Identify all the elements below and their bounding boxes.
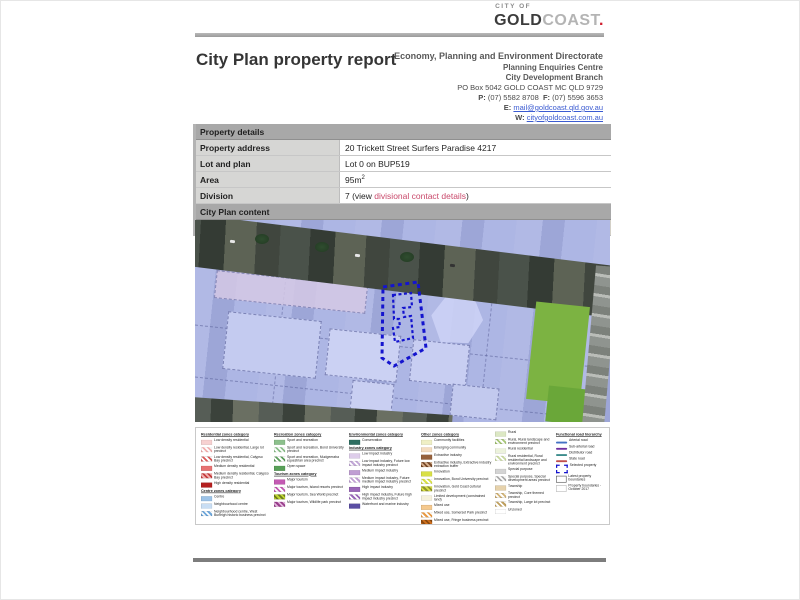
table-row: Division 7 (view divisional contact deta… [196, 188, 611, 204]
header-rule [195, 33, 604, 37]
legend-swatch [421, 440, 432, 445]
legend-swatch [274, 447, 285, 452]
legend-item: Major tourism [274, 479, 346, 485]
map-tree [315, 242, 329, 252]
legend-column: RuralRural, Rural landscape and environm… [495, 431, 553, 525]
row-label: Lot and plan [196, 156, 340, 171]
legend-swatch [274, 440, 285, 445]
legend-swatch [495, 432, 506, 437]
legend-item: Community facilities [421, 439, 493, 445]
legend-item-label: Extractive industry, Extractive industry… [434, 462, 493, 469]
contact-block: Economy, Planning and Environment Direct… [394, 51, 603, 123]
legend-item: Mixed use [421, 504, 493, 510]
page-title: City Plan property report [196, 50, 396, 70]
legend-item: Medium density residential, Calypso Bay … [201, 473, 269, 480]
legend-item: Major tourism, Sea World precinct [274, 494, 346, 500]
legend-swatch [201, 482, 212, 487]
legend-swatch [421, 505, 432, 510]
legend-item: Sub-arterial road [556, 445, 606, 449]
legend-item-label: Innovation [434, 471, 450, 475]
legend-item-label: Sport and recreation [287, 439, 318, 443]
legend-item: Extractive industry [421, 454, 493, 460]
legend-swatch [201, 466, 212, 471]
legend-swatch [556, 442, 567, 444]
legend-swatch [274, 494, 285, 499]
legend-item-label: Low density residential, Calypso Bay pre… [214, 456, 269, 463]
legend-section-header: Tourism zones category [274, 473, 346, 477]
legend-item-label: Rural residential [508, 448, 533, 452]
legend-swatch [495, 485, 506, 490]
legend-item-label: Medium density residential [214, 465, 254, 469]
legend-item: Limited development (constrained land) [421, 495, 493, 502]
legend-item-label: Township, Core themed precinct [508, 492, 553, 499]
enquiries-centre: Planning Enquiries Centre [394, 63, 603, 72]
legend-item-label: Major tourism, Wildlife park precinct [287, 501, 341, 505]
legend-swatch [421, 455, 432, 460]
legend-item-label: Township, Large lot precinct [508, 501, 550, 505]
legend-item-label: Conservation [362, 439, 382, 443]
area-superscript: 2 [362, 175, 365, 181]
legend-item: Township, Large lot precinct [495, 501, 553, 507]
legend-item-label: Low density residential, Large lot preci… [214, 447, 269, 454]
legend-item-label: Property boundaries - October 2017 [568, 484, 606, 491]
row-label: Division [196, 188, 340, 203]
legend-item-label: High impact industry, Future high impact… [362, 494, 419, 501]
legend-swatch [495, 476, 506, 481]
legend-item: Major tourism, Wildlife park precinct [274, 501, 346, 507]
legend-swatch [495, 469, 506, 474]
legend-item: Rural, Rural landscape and environment p… [495, 438, 553, 445]
legend-swatch [349, 503, 360, 508]
legend-item-label: Distributor road [569, 452, 592, 456]
directorate-name: Economy, Planning and Environment Direct… [394, 51, 603, 61]
legend-item: Rural residential [495, 448, 553, 454]
table-row: Lot and plan Lot 0 on BUP519 [196, 156, 611, 172]
legend-item-label: Rural, Rural landscape and environment p… [508, 438, 553, 445]
legend-item-label: Major tourism [287, 479, 308, 483]
legend-swatch [349, 487, 360, 492]
legend-item: Low impact industry, Future low impact i… [349, 460, 419, 467]
legend-item-label: Rural [508, 431, 516, 435]
email-link[interactable]: mail@goldcoast.qld.gov.au [513, 103, 603, 112]
legend-swatch [349, 470, 360, 475]
legend-item-label: Neighbourhood centre, West Burleigh hist… [214, 510, 269, 517]
legend-item-label: Open space [287, 465, 305, 469]
branch-name: City Development Branch [394, 73, 603, 82]
logo-goldcoast: GOLDCOAST. [494, 13, 604, 29]
legend-item-label: Sport and recreation, Bond University pr… [287, 447, 346, 454]
legend-item: Major tourism, Island resorts precinct [274, 486, 346, 492]
legend-item-label: Centre [214, 495, 224, 499]
legend-item-label: Major tourism, Island resorts precinct [287, 486, 343, 490]
logo-city-of: CITY OF [495, 4, 604, 11]
legend-swatch [495, 502, 506, 507]
legend-item-label: Major tourism, Sea World precinct [287, 494, 338, 498]
row-label: Area [196, 172, 340, 187]
legend-item: Property boundaries - October 2017 [556, 484, 606, 491]
legend-item-label: Rural residential, Rural residential lan… [508, 455, 553, 466]
legend-item-label: Medium impact industry, Future medium im… [362, 477, 419, 484]
legend-item-label: Mixed use [434, 504, 450, 508]
zone-map-legend: Residential zones categoryLow density re… [195, 427, 610, 525]
legend-item: Innovation, Bond University precinct [421, 478, 493, 484]
legend-item: Sport and recreation [274, 439, 346, 445]
legend-item: Low density residential [201, 439, 269, 445]
legend-section-header: Other zones category [421, 433, 493, 437]
legend-swatch [349, 494, 360, 499]
legend-item: High density residential [201, 482, 269, 488]
legend-item-label: Mixed use, Somerset Park precinct [434, 512, 487, 516]
legend-swatch [349, 461, 360, 466]
footer-rule [193, 558, 606, 562]
legend-item: Distributor road [556, 452, 606, 456]
legend-item: Arterial road [556, 439, 606, 443]
legend-item: Innovation [421, 471, 493, 477]
legend-item: Sport and recreation, Bond University pr… [274, 447, 346, 454]
legend-item-label: High impact industry [362, 486, 393, 490]
legend-item-label: State road [569, 458, 585, 462]
legend-columns: Residential zones categoryLow density re… [196, 428, 609, 524]
table-row: Area 95m2 [196, 172, 611, 188]
legend-swatch [421, 495, 432, 500]
legend-item-label: Arterial road [569, 439, 588, 443]
legend-column: Other zones categoryCommunity facilities… [421, 431, 493, 525]
legend-item-label: Special purpose, Special development are… [508, 475, 553, 482]
legend-item-label: Low impact industry [362, 453, 392, 457]
legend-item: Open space [274, 465, 346, 471]
legend-swatch [495, 493, 506, 498]
legend-item-label: Emerging community [434, 447, 466, 451]
map-lot [222, 311, 322, 379]
legend-swatch [421, 462, 432, 467]
legend-swatch [274, 479, 285, 484]
legend-item: Mixed use, Somerset Park precinct [421, 512, 493, 518]
legend-item: Medium impact industry, Future medium im… [349, 477, 419, 484]
legend-item: Low density residential, Calypso Bay pre… [201, 456, 269, 463]
goldcoast-logo: CITY OF GOLDCOAST. [494, 4, 604, 29]
map-tree [400, 252, 414, 262]
legend-swatch [201, 447, 212, 452]
legend-swatch [421, 447, 432, 452]
legend-item-label: Latest property boundaries [568, 475, 606, 482]
map-tree [255, 234, 269, 244]
legend-item: Medium impact industry [349, 470, 419, 476]
legend-swatch [556, 485, 567, 492]
legend-swatch [421, 471, 432, 476]
area-value: 95m2 [340, 172, 611, 187]
property-report-page: CITY OF GOLDCOAST. City Plan property re… [0, 0, 800, 600]
legend-item-label: Extractive industry [434, 454, 462, 458]
legend-column: Environmental zones categoryConservation… [349, 431, 419, 525]
logo-red-dot: . [599, 12, 604, 29]
legend-swatch [349, 478, 360, 483]
legend-item: Special purpose [495, 468, 553, 474]
legend-item: Medium density residential [201, 465, 269, 471]
zone-map-image [195, 220, 610, 422]
legend-swatch [421, 520, 432, 525]
legend-swatch [495, 439, 506, 444]
legend-item: Latest property boundaries [556, 475, 606, 482]
legend-item: Emerging community [421, 447, 493, 453]
web-line: W: cityofgoldcoast.com.au [394, 113, 603, 122]
legend-swatch [495, 448, 506, 453]
legend-swatch [201, 473, 212, 478]
legend-item: Waterfront and marine industry [349, 503, 419, 509]
legend-section-header: Functional road hierarchy [556, 433, 606, 437]
legend-item-label: Selected property [570, 464, 597, 468]
legend-swatch [274, 466, 285, 471]
legend-item: High impact industry [349, 486, 419, 492]
legend-item: Low impact industry [349, 453, 419, 459]
legend-item: Rural residential, Rural residential lan… [495, 455, 553, 466]
legend-swatch [349, 440, 360, 445]
legend-item: Mixed use, Fringe business precinct [421, 519, 493, 525]
legend-swatch [495, 509, 506, 514]
legend-swatch [556, 465, 568, 474]
legend-item-label: Sport and recreation, Mudgeeraba equestr… [287, 456, 346, 463]
legend-item: Conservation [349, 439, 419, 445]
legend-item: Special purpose, Special development are… [495, 475, 553, 482]
legend-column: Recreation zones categorySport and recre… [274, 431, 346, 525]
legend-item-label: Community facilities [434, 439, 464, 443]
lot-plan-value: Lot 0 on BUP519 [340, 156, 611, 171]
legend-item-label: Waterfront and marine industry [362, 503, 409, 507]
legend-section-header: Industry zones category [349, 447, 419, 451]
legend-item-label: Limited development (constrained land) [434, 495, 493, 502]
legend-swatch [421, 486, 432, 491]
legend-item: Innovation, Gold Coast cultural precinct [421, 486, 493, 493]
po-box-line: PO Box 5042 GOLD COAST MC QLD 9729 [394, 83, 603, 92]
legend-item: Township, Core themed precinct [495, 492, 553, 499]
legend-item-label: Neighbourhood centre [214, 503, 248, 507]
map-car [355, 254, 360, 257]
legend-swatch [201, 503, 212, 508]
legend-item: State road [556, 458, 606, 462]
legend-item-label: Low impact industry, Future low impact i… [362, 460, 419, 467]
map-car [450, 264, 455, 267]
legend-item: Low density residential, Large lot preci… [201, 447, 269, 454]
legend-swatch [201, 511, 212, 516]
division-value: 7 (view divisional contact details) [340, 188, 611, 203]
legend-item-label: Low density residential [214, 439, 249, 443]
legend-item: Unzoned [495, 509, 553, 515]
legend-item-label: Medium density residential, Calypso Bay … [214, 473, 269, 480]
section-city-plan-content: City Plan content [196, 204, 611, 220]
legend-section-header: Centre zones category [201, 489, 269, 493]
legend-item-label: High density residential [214, 482, 249, 486]
legend-item-label: Innovation, Gold Coast cultural precinct [434, 486, 493, 493]
legend-swatch [274, 502, 285, 507]
legend-swatch [274, 487, 285, 492]
row-label: Property address [196, 140, 340, 155]
legend-swatch [421, 479, 432, 484]
website-link[interactable]: cityofgoldcoast.com.au [527, 113, 603, 122]
legend-item-label: Special purpose [508, 468, 532, 472]
legend-swatch [556, 448, 567, 450]
legend-swatch [495, 456, 506, 461]
legend-item-label: Mixed use, Fringe business precinct [434, 519, 488, 523]
table-row: Property address 20 Trickett Street Surf… [196, 140, 611, 156]
property-address-value: 20 Trickett Street Surfers Paradise 4217 [340, 140, 611, 155]
legend-item: Centre [201, 495, 269, 501]
legend-swatch [201, 440, 212, 445]
map-lot [449, 384, 499, 421]
legend-item: Extractive industry, Extractive industry… [421, 462, 493, 469]
legend-section-header: Residential zones category [201, 433, 269, 437]
section-property-details: Property details [196, 124, 611, 140]
legend-item: Neighbourhood centre [201, 503, 269, 509]
legend-swatch [201, 456, 212, 461]
legend-swatch [201, 496, 212, 501]
legend-item-label: Township [508, 485, 522, 489]
legend-item: Selected property [556, 464, 606, 473]
legend-swatch [556, 460, 567, 462]
legend-swatch [556, 454, 567, 456]
legend-swatch [556, 476, 567, 483]
legend-item: Sport and recreation, Mudgeeraba equestr… [274, 456, 346, 463]
phone-fax-line: P: (07) 5582 8708 F: (07) 5596 3653 [394, 93, 603, 102]
email-line: E: mail@goldcoast.qld.gov.au [394, 103, 603, 112]
legend-section-header: Recreation zones category [274, 433, 346, 437]
legend-item-label: Medium impact industry [362, 470, 398, 474]
divisional-contact-details-link[interactable]: divisional contact details [374, 191, 466, 201]
legend-swatch [421, 512, 432, 517]
legend-item: Neighbourhood centre, West Burleigh hist… [201, 510, 269, 517]
legend-item: Township [495, 485, 553, 491]
legend-item-label: Sub-arterial road [569, 445, 594, 449]
legend-column: Residential zones categoryLow density re… [201, 431, 269, 525]
legend-section-header: Environmental zones category [349, 433, 419, 437]
map-car [230, 240, 235, 243]
legend-swatch [349, 453, 360, 458]
legend-item-label: Unzoned [508, 509, 522, 513]
legend-item-label: Innovation, Bond University precinct [434, 478, 488, 482]
selected-property-outline [371, 278, 431, 368]
legend-item: High impact industry, Future high impact… [349, 494, 419, 501]
legend-column: Functional road hierarchyArterial roadSu… [556, 431, 606, 525]
legend-swatch [274, 456, 285, 461]
legend-item: Rural [495, 431, 553, 437]
